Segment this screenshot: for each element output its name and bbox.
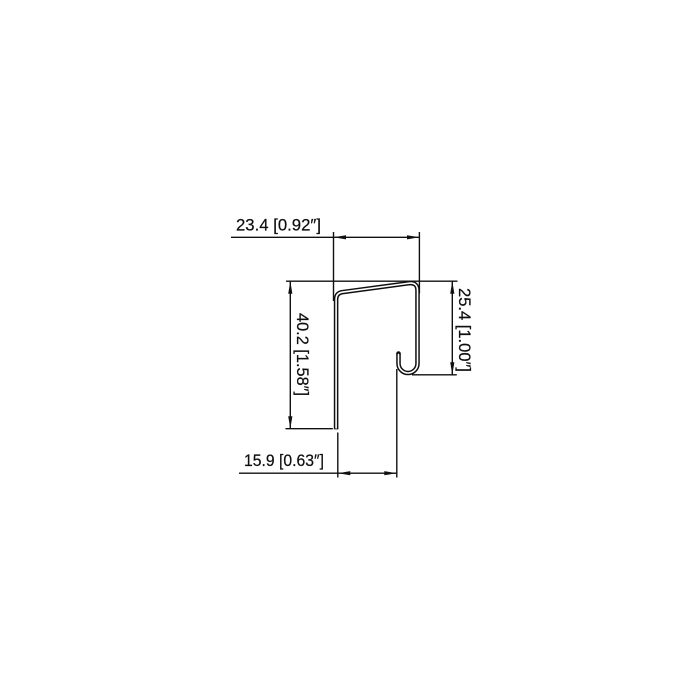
- svg-text:25.4 [1.00″]: 25.4 [1.00″]: [455, 288, 473, 372]
- svg-text:40.2 [1.58″]: 40.2 [1.58″]: [293, 313, 311, 396]
- svg-text:15.9 [0.63″]: 15.9 [0.63″]: [244, 452, 324, 470]
- svg-text:23.4 [0.92″]: 23.4 [0.92″]: [236, 216, 321, 234]
